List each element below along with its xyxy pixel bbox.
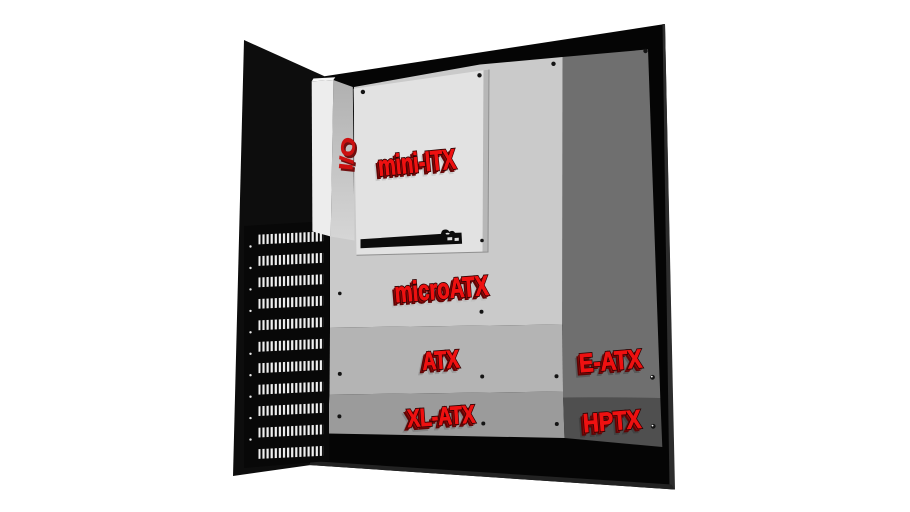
svg-text:I/O: I/O xyxy=(336,136,360,171)
svg-text:E-ATX: E-ATX xyxy=(578,343,644,378)
svg-text:XL-ATX: XL-ATX xyxy=(406,400,476,433)
svg-text:HPTX: HPTX xyxy=(582,404,643,439)
svg-text:ATX: ATX xyxy=(421,345,460,376)
